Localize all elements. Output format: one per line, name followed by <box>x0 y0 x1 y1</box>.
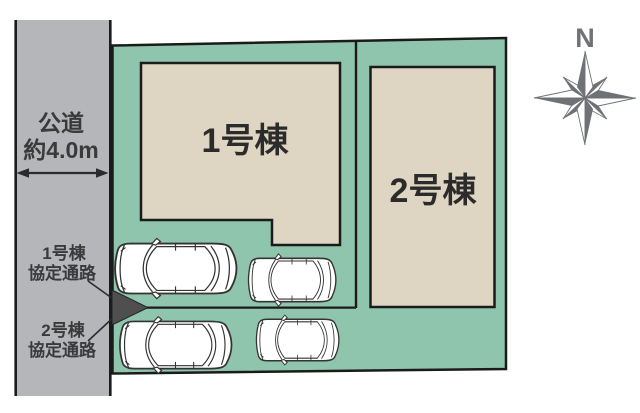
car-icon-1 <box>115 238 236 298</box>
compass-rose-icon: N <box>534 23 636 145</box>
car-icon-2 <box>249 254 336 306</box>
car-icon-4 <box>256 315 338 365</box>
passage-label-2-line1: 2号棟 <box>41 320 85 340</box>
compass-north-label: N <box>575 23 595 53</box>
building-1-label: 1号棟 <box>202 122 290 160</box>
passage-label-1-line1: 1号棟 <box>42 243 86 263</box>
car-icon-3 <box>120 317 232 374</box>
passage-label-1-line2: 協定通路 <box>28 263 97 283</box>
road-label-line1: 公道 <box>38 110 84 136</box>
building-2-label: 2号棟 <box>390 172 478 210</box>
passage-label-2-line2: 協定通路 <box>28 340 97 360</box>
road-label-line2: 約4.0m <box>23 137 98 163</box>
site-plan: 1号棟 2号棟 公道 約4.0m 1号棟 協定通路 2号棟 協定通路 N <box>0 0 640 413</box>
